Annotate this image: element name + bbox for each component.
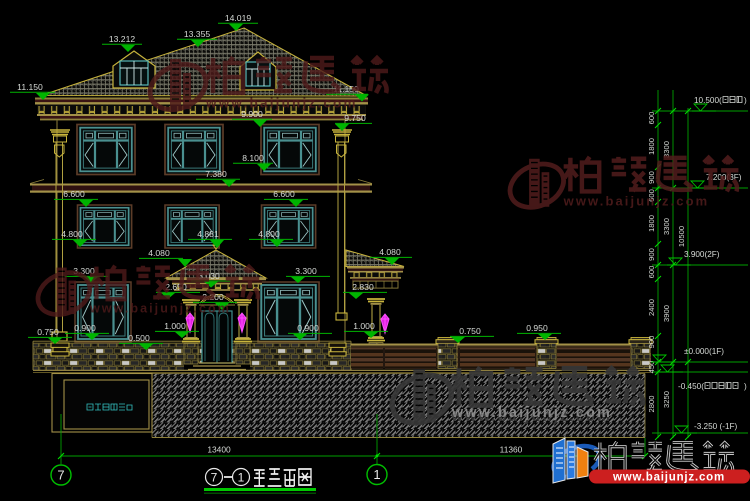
svg-text:0.500: 0.500 [128,333,150,343]
svg-text:2400: 2400 [647,299,656,316]
svg-text:3.900(2F): 3.900(2F) [684,250,720,259]
svg-text:10500: 10500 [677,226,686,247]
svg-text:4.080: 4.080 [148,248,170,258]
svg-text:900: 900 [647,336,656,349]
svg-text:0.750: 0.750 [37,327,59,337]
svg-text:450: 450 [647,361,656,374]
svg-text:600: 600 [647,266,656,279]
svg-text:7: 7 [57,468,64,483]
svg-text:3300: 3300 [662,218,671,235]
svg-text:1.000: 1.000 [164,321,186,331]
svg-text:4.800: 4.800 [258,229,280,239]
svg-text:1: 1 [373,467,380,482]
svg-text:600: 600 [647,112,656,125]
svg-text:www.baijunjz.com: www.baijunjz.com [612,472,725,484]
svg-text:2800: 2800 [647,396,656,413]
svg-text:1: 1 [238,471,245,485]
svg-text:1.000: 1.000 [353,321,375,331]
svg-text:6.600: 6.600 [273,189,295,199]
svg-text:14.019: 14.019 [225,13,252,23]
svg-text:1800: 1800 [647,138,656,155]
svg-text:13.355: 13.355 [184,29,211,39]
svg-text:www.baijunjz.com: www.baijunjz.com [451,405,612,421]
svg-text:3.300: 3.300 [295,266,317,276]
svg-text:7: 7 [211,471,218,485]
svg-text:0.750: 0.750 [459,326,481,336]
svg-text:4.080: 4.080 [379,247,401,257]
svg-text:-3.250 (-1F): -3.250 (-1F) [694,422,737,431]
svg-text:4.800: 4.800 [61,229,83,239]
svg-text:-0.450(: -0.450( [678,382,704,391]
svg-text:8.100: 8.100 [242,153,264,163]
svg-text:3250: 3250 [662,391,671,408]
svg-text:13.212: 13.212 [109,34,136,44]
svg-text:3300: 3300 [662,141,671,158]
svg-text:900: 900 [647,248,656,261]
svg-text:900: 900 [647,171,656,184]
svg-text:11.150: 11.150 [17,82,43,92]
svg-text:1800: 1800 [647,215,656,232]
svg-text:0.950: 0.950 [526,323,548,333]
svg-text:0.900: 0.900 [74,323,96,333]
svg-text:9.750: 9.750 [344,113,366,123]
svg-text:13400: 13400 [207,445,231,455]
svg-text:4.881: 4.881 [197,229,219,239]
svg-text:2.830: 2.830 [352,282,374,292]
svg-text:7.380: 7.380 [205,169,227,179]
svg-text:0.900: 0.900 [297,323,319,333]
svg-text:): ) [744,96,747,105]
svg-text:9.900: 9.900 [241,109,263,119]
svg-text:3900: 3900 [662,305,671,322]
svg-text:±0.000(1F): ±0.000(1F) [684,347,724,356]
svg-text:): ) [744,382,747,391]
svg-text:11360: 11360 [500,445,523,455]
svg-text:6.600: 6.600 [63,189,85,199]
